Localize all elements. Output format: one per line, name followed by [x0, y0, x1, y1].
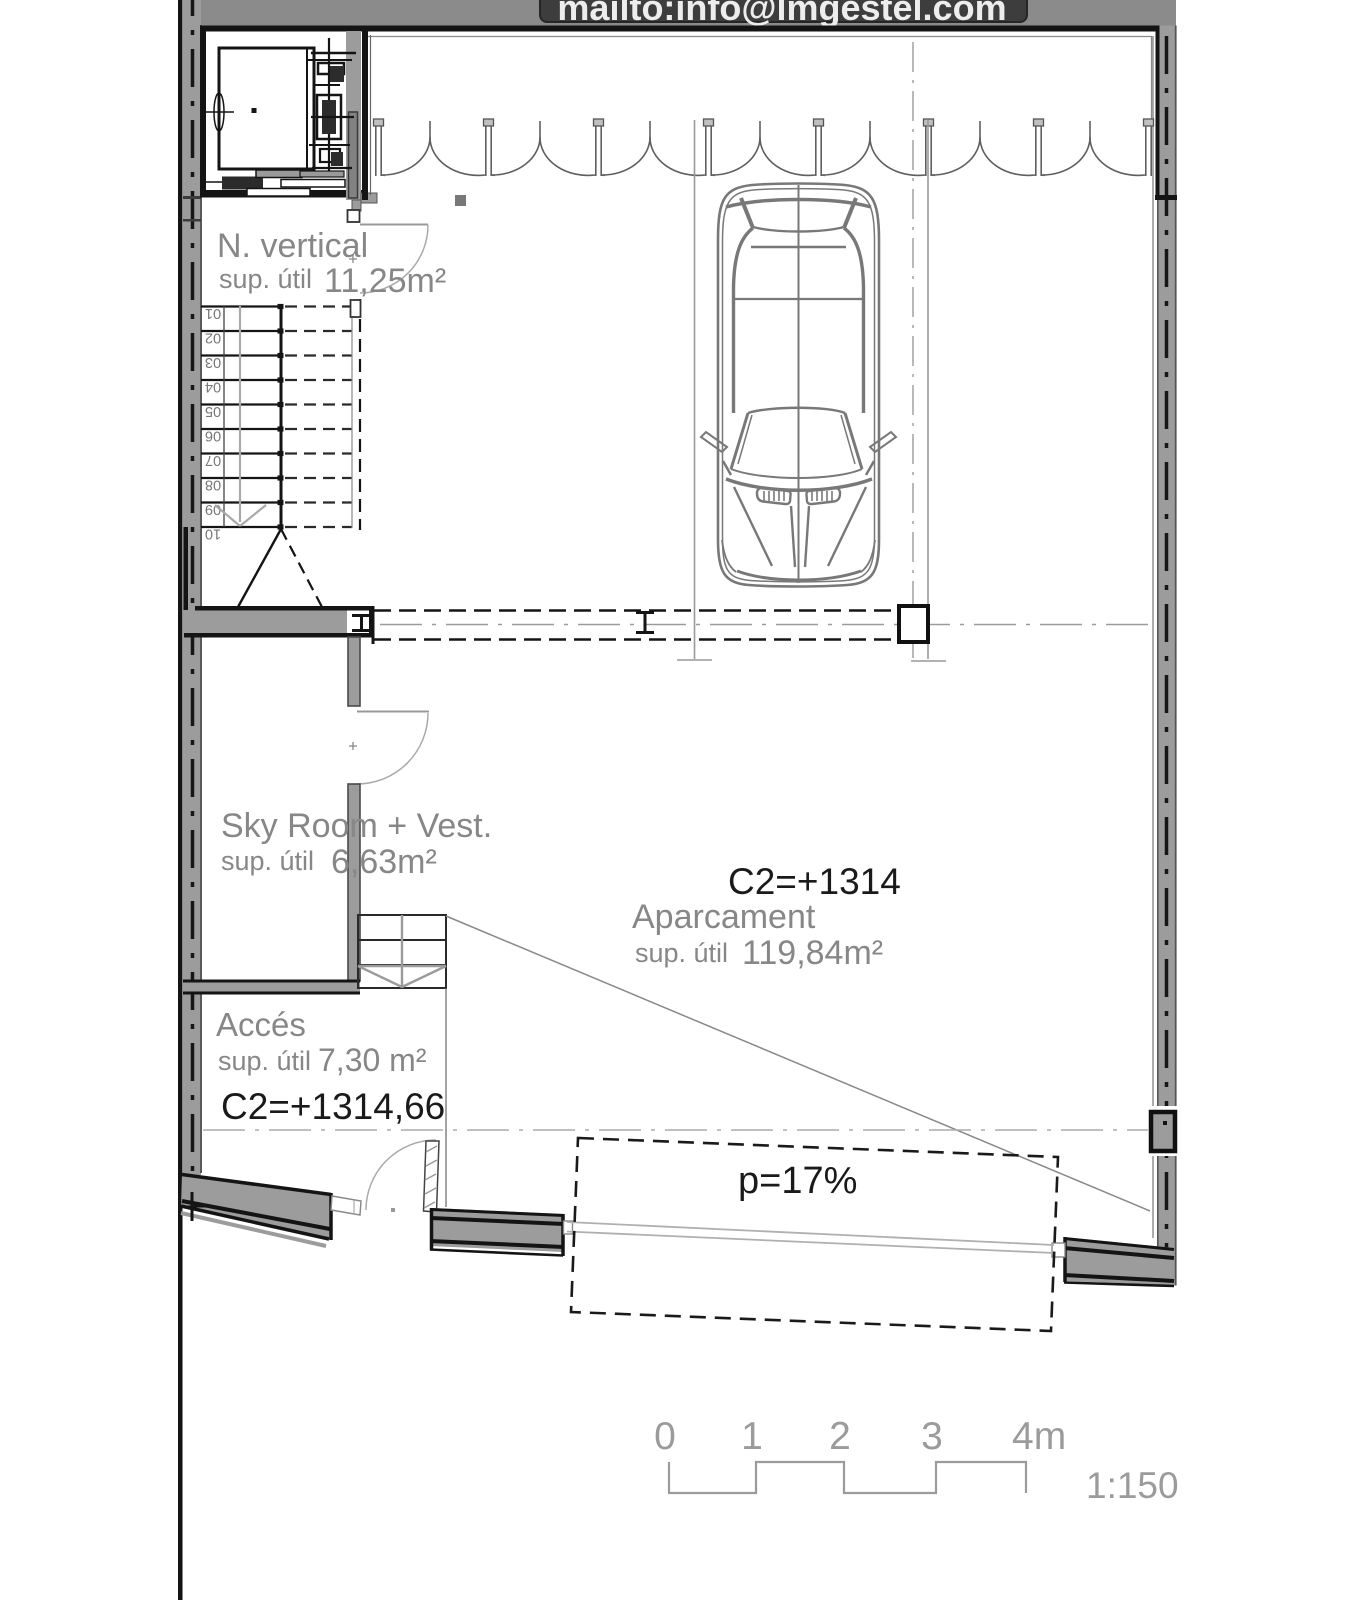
svg-text:7,30 m²: 7,30 m² [318, 1042, 427, 1078]
svg-text:05: 05 [205, 403, 221, 419]
svg-text:10: 10 [205, 526, 221, 542]
svg-text:01: 01 [205, 305, 221, 321]
svg-text:Accés: Accés [216, 1006, 306, 1043]
svg-text:sup. útil: sup. útil [635, 938, 728, 968]
svg-text:02: 02 [205, 330, 221, 346]
svg-text:08: 08 [205, 477, 221, 493]
svg-text:06: 06 [205, 428, 221, 444]
svg-text:03: 03 [205, 354, 221, 370]
svg-text:C2=+1314,66: C2=+1314,66 [221, 1086, 445, 1127]
svg-text:Sky Room + Vest.: Sky Room + Vest. [221, 807, 492, 845]
svg-text:Aparcament: Aparcament [632, 898, 816, 936]
svg-text:C2=+1314: C2=+1314 [728, 861, 901, 902]
svg-text:N. vertical: N. vertical [217, 227, 368, 265]
svg-text:3: 3 [921, 1415, 943, 1458]
svg-text:sup. útil: sup. útil [219, 264, 312, 294]
svg-text:p=17%: p=17% [738, 1160, 857, 1202]
svg-text:1: 1 [741, 1415, 763, 1458]
svg-text:2: 2 [829, 1415, 851, 1458]
svg-text:6,63m²: 6,63m² [331, 843, 437, 881]
svg-text:0: 0 [654, 1415, 676, 1458]
svg-text:mailto:info@lmgestel.com: mailto:info@lmgestel.com [557, 0, 1006, 28]
svg-text:4m: 4m [1012, 1415, 1066, 1458]
svg-text:04: 04 [205, 379, 221, 395]
svg-text:sup. útil: sup. útil [221, 846, 314, 876]
svg-text:07: 07 [205, 452, 221, 468]
svg-text:sup. útil: sup. útil [218, 1046, 311, 1076]
svg-text:119,84m²: 119,84m² [742, 934, 883, 972]
svg-text:11,25m²: 11,25m² [324, 262, 446, 300]
svg-text:1:150: 1:150 [1086, 1465, 1179, 1506]
